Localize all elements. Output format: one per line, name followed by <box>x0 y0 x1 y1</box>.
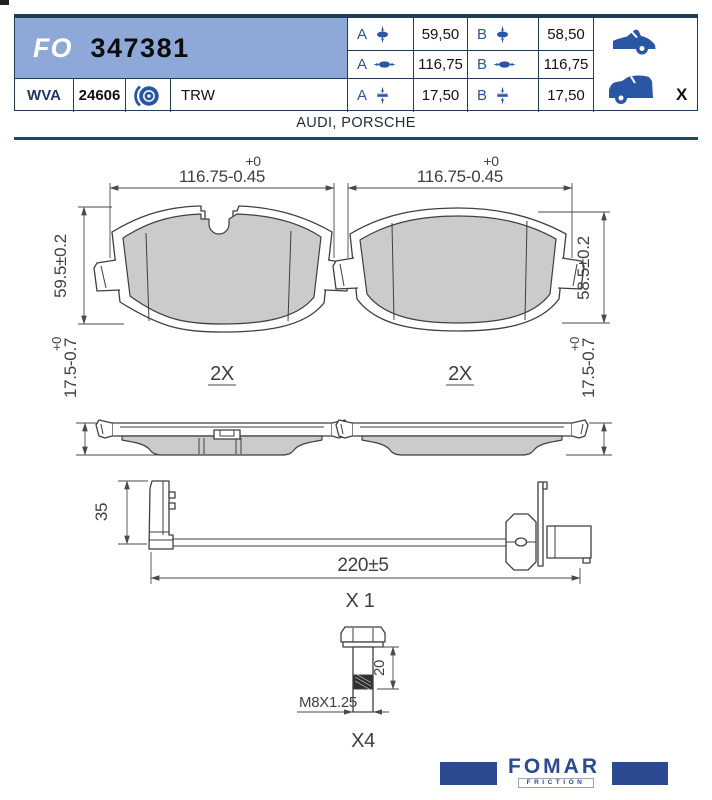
dim-tolerance: +0 <box>245 153 261 169</box>
a-thickness-value: 17,50 <box>422 87 460 104</box>
a-height-value: 59,50 <box>422 26 460 43</box>
pad-right-thickness-dimension: 17.5-0.7 +0 <box>566 337 612 455</box>
wva-label: WVA <box>15 79 74 112</box>
b-label: B <box>477 87 487 104</box>
axle-position-cell: X <box>594 18 697 113</box>
brake-disc-icon-cell <box>126 79 171 112</box>
rear-axle-marker: X <box>676 85 687 105</box>
b-label: B <box>477 56 487 73</box>
dim-text: 116.75-0.45 <box>417 167 503 186</box>
bolt-length-dimension: 20 <box>371 647 399 689</box>
dim-tolerance: +0 <box>567 337 582 351</box>
dimension-row-width: A 116,75 B 116,75 <box>348 51 594 79</box>
part-number-banner: FO 347381 <box>15 18 348 79</box>
pad-height-icon <box>494 26 511 43</box>
dim-text: 20 <box>371 660 388 676</box>
dim-tolerance: +0 <box>49 337 64 351</box>
dimension-row-height: A 59,50 B 58,50 <box>348 18 594 51</box>
b-label: B <box>477 26 487 43</box>
b-thickness-value: 17,50 <box>547 87 585 104</box>
pad-right-profile-view <box>336 420 588 455</box>
a-label: A <box>357 56 367 73</box>
pad-left-front-view <box>94 206 350 332</box>
brand-reference: TRW <box>171 79 348 112</box>
dim-text: 35 <box>92 503 111 521</box>
part-number: 347381 <box>91 33 190 64</box>
dim-text: 58.5±0.2 <box>574 236 593 300</box>
pad-left-profile-view <box>96 420 348 455</box>
a-width-value: 116,75 <box>418 56 463 73</box>
logo-left-bar <box>440 762 497 785</box>
logo-right-bar <box>612 762 668 785</box>
dim-text: 59.5±0.2 <box>51 234 70 298</box>
vehicle-applications: AUDI, PORSCHE <box>0 115 712 131</box>
brand-logo-subtext: FRICTION <box>518 778 594 788</box>
pad-right-quantity: 2X <box>448 363 472 385</box>
a-label: A <box>357 26 367 43</box>
thread-spec: M8X1.25 <box>299 694 357 711</box>
dimension-row-thickness: A 17,50 B 17,50 <box>348 79 594 112</box>
car-front-icon <box>611 25 657 55</box>
pad-height-icon <box>374 26 391 43</box>
sensor-quantity: X 1 <box>345 590 374 612</box>
b-width-value: 116,75 <box>544 56 589 73</box>
wva-row: WVA 24606 TRW <box>15 79 348 112</box>
pad-width-icon <box>494 58 515 71</box>
bolt-quantity: X4 <box>351 730 375 752</box>
brand-logo-text: FOMAR <box>498 755 610 779</box>
b-height-value: 58,50 <box>547 26 585 43</box>
pad-thickness-icon <box>494 87 511 104</box>
bolt-thread-dimension: M8X1.25 <box>297 694 389 715</box>
header-table: FO 347381 WVA 24606 TRW A 59,50 <box>14 14 698 111</box>
dim-text: 116.75-0.45 <box>179 167 265 186</box>
pad-right-front-view <box>333 208 584 331</box>
pad-width-icon <box>374 58 395 71</box>
pad-left-quantity: 2X <box>210 363 234 385</box>
scan-corner-mark <box>0 0 9 5</box>
series-prefix: FO <box>33 33 73 64</box>
pad-thickness-icon <box>374 87 391 104</box>
dim-text: 220±5 <box>337 555 388 576</box>
wva-number: 24606 <box>74 79 126 112</box>
brake-disc-icon <box>134 82 162 110</box>
car-rear-icon <box>608 73 654 105</box>
technical-drawing: 116.75-0.45 +0 59.5±0.2 2X 116.75-0.45 <box>0 140 712 800</box>
datasheet-page: FO 347381 WVA 24606 TRW A 59,50 <box>0 0 712 800</box>
sensor-clip-height-dimension: 35 <box>92 481 148 544</box>
dim-tolerance: +0 <box>483 153 499 169</box>
a-label: A <box>357 87 367 104</box>
